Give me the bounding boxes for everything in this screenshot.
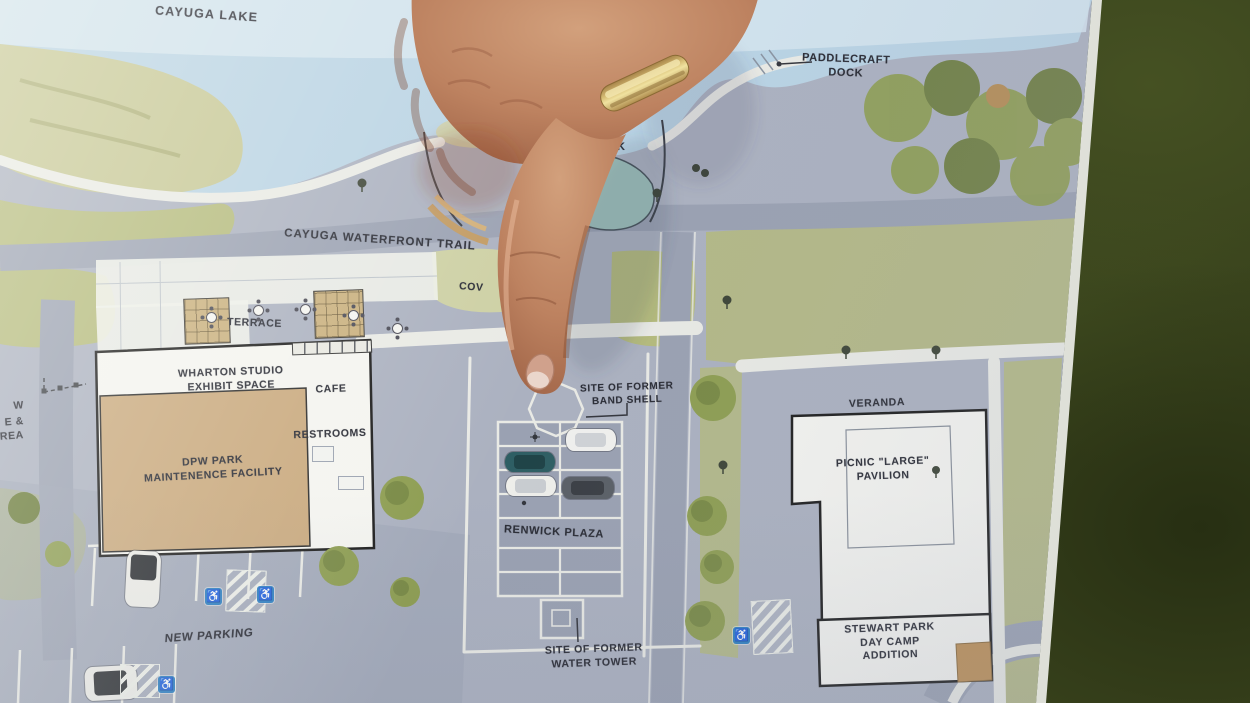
accessible-parking-icon: ♿ [257,586,274,603]
tree-cluster [864,60,1092,206]
accessible-parking-icon: ♿ [158,676,175,693]
terrace-table-symbol [253,305,264,316]
label-restrooms: RESTROOMS [293,427,367,443]
label-cafe: CAFE [315,382,346,397]
hatched-zone [120,664,160,698]
terrace-table-symbol [300,304,311,315]
label-band-shell: SITE OF FORMER BAND SHELL [580,379,674,408]
label-day-camp: STEWART PARK DAY CAMP ADDITION [844,620,936,664]
label-covered-partial: COV [459,280,484,295]
label-picnic-pavilion: PICNIC "LARGE" PAVILION [836,454,931,485]
hatched-zone [751,599,794,655]
parked-car [506,476,556,496]
restroom-fixture [338,476,364,490]
accessible-parking-icon: ♿ [205,588,222,605]
parked-car [125,550,162,608]
terrace-table-symbol [348,310,359,321]
parked-car [505,452,555,472]
accessible-parking-icon: ♿ [733,627,750,644]
photo-scene: ♿ ♿ ♿ ♿ CAYUGA LAKE PADDLECRAFT DOCK CAY… [0,0,1250,703]
terrace-table-symbol [392,323,403,334]
label-water-tower: SITE OF FORMER WATER TOWER [545,641,644,672]
label-terrace: TERRACE [227,316,282,332]
parked-car [566,429,616,451]
terrace-table-symbol [206,312,217,323]
label-wharton-studio: WHARTON STUDIO EXHIBIT SPACE [178,364,285,395]
label-k-partial: K [617,140,626,154]
parked-car [562,477,614,499]
label-veranda: VERANDA [849,396,906,412]
label-paddlecraft-dock: PADDLECRAFT DOCK [801,50,890,82]
roof-detail-squares [292,340,372,356]
restroom-fixture [312,446,334,462]
